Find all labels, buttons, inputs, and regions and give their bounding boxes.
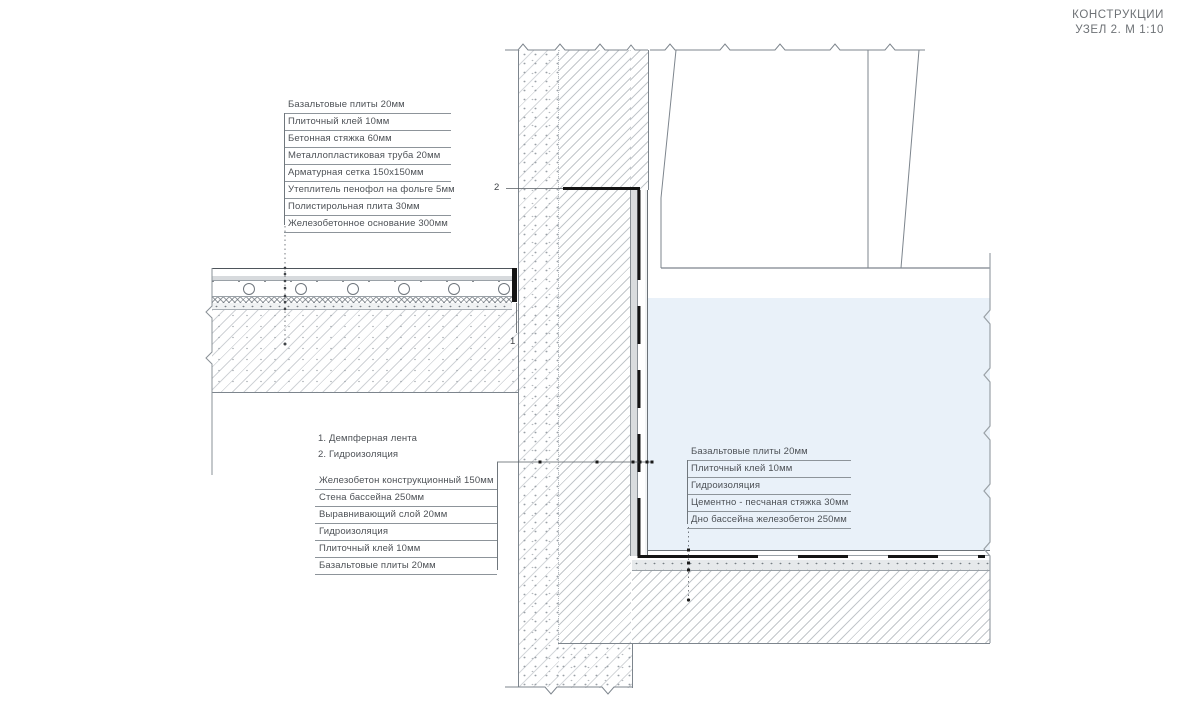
marker-2-label: 2 [494,182,499,193]
wall-top-break-line [505,44,648,50]
floor-layer-label: Плиточный клей 10мм [284,114,451,131]
upper-region-slant-right [901,50,919,268]
note-item: 1. Демпферная лента [318,431,417,447]
wall-layer-label: Железобетон конструкционный 150мм [315,473,497,490]
wall-layer-label: Плиточный клей 10мм [315,541,497,558]
marker-1-label: 1 [510,336,515,347]
pool-right-break-edge [984,253,990,643]
floor-layer-label: Бетонная стяжка 60мм [284,131,451,148]
pool-bottom-layer-label: Гидроизоляция [687,478,851,495]
floor-layer-label: Арматурная сетка 150х150мм [284,165,451,182]
linework-overlay [0,0,1182,723]
pool-bottom-layer-label: Базальтовые плиты 20мм [687,444,851,461]
note-item: 2. Гидроизоляция [318,447,417,463]
floor-layer-label: Утеплитель пенофол на фольге 5мм [284,182,451,199]
pool-bottom-layer-label: Плиточный клей 10мм [687,461,851,478]
title-line-2: УЗЕЛ 2. М 1:10 [1072,23,1164,38]
pool-bottom-layers-callout: Базальтовые плиты 20мм Плиточный клей 10… [687,444,851,529]
pool-bottom-layer-label: Цементно - песчаная стяжка 30мм [687,495,851,512]
pool-bottom-layer-label: Дно бассейна железобетон 250мм [687,512,851,529]
upper-region-break-line [650,44,925,50]
waterproofing-corner [639,534,708,557]
wall-layers-callout: Железобетон конструкционный 150мм Стена … [315,473,497,575]
pool-bottom-leader-ticks [687,549,690,602]
wall-layer-label: Стена бассейна 250мм [315,490,497,507]
floor-layer-label: Базальтовые плиты 20мм [284,97,451,114]
floor-left-break-edge [206,268,212,475]
floor-layer-label: Железобетонное основание 300мм [284,216,451,233]
floor-layers-callout-connector [284,113,285,225]
floor-layer-label: Полистирольная плита 30мм [284,199,451,216]
wall-layers-callout-connector [497,462,498,570]
drawing-title: КОНСТРУКЦИИ УЗЕЛ 2. М 1:10 [1072,8,1164,38]
floor-layers-callout: Базальтовые плиты 20мм Плиточный клей 10… [284,97,451,233]
title-line-1: КОНСТРУКЦИИ [1072,8,1164,23]
wall-layer-label: Выравнивающий слой 20мм [315,507,497,524]
floor-layer-label: Металлопластиковая труба 20мм [284,148,451,165]
notes-block: 1. Демпферная лента 2. Гидроизоляция [318,431,417,463]
foundation-bottom-break-line [505,687,632,694]
construction-detail-drawing: КОНСТРУКЦИИ УЗЕЛ 2. М 1:10 Базальтовые п… [0,0,1182,723]
floor-layers-leader-dots [284,267,287,346]
upper-region-slant-left [661,50,676,268]
wall-layer-label: Гидроизоляция [315,524,497,541]
wall-layer-label: Базальтовые плиты 20мм [315,558,497,575]
pool-bottom-layers-callout-connector [687,460,688,524]
